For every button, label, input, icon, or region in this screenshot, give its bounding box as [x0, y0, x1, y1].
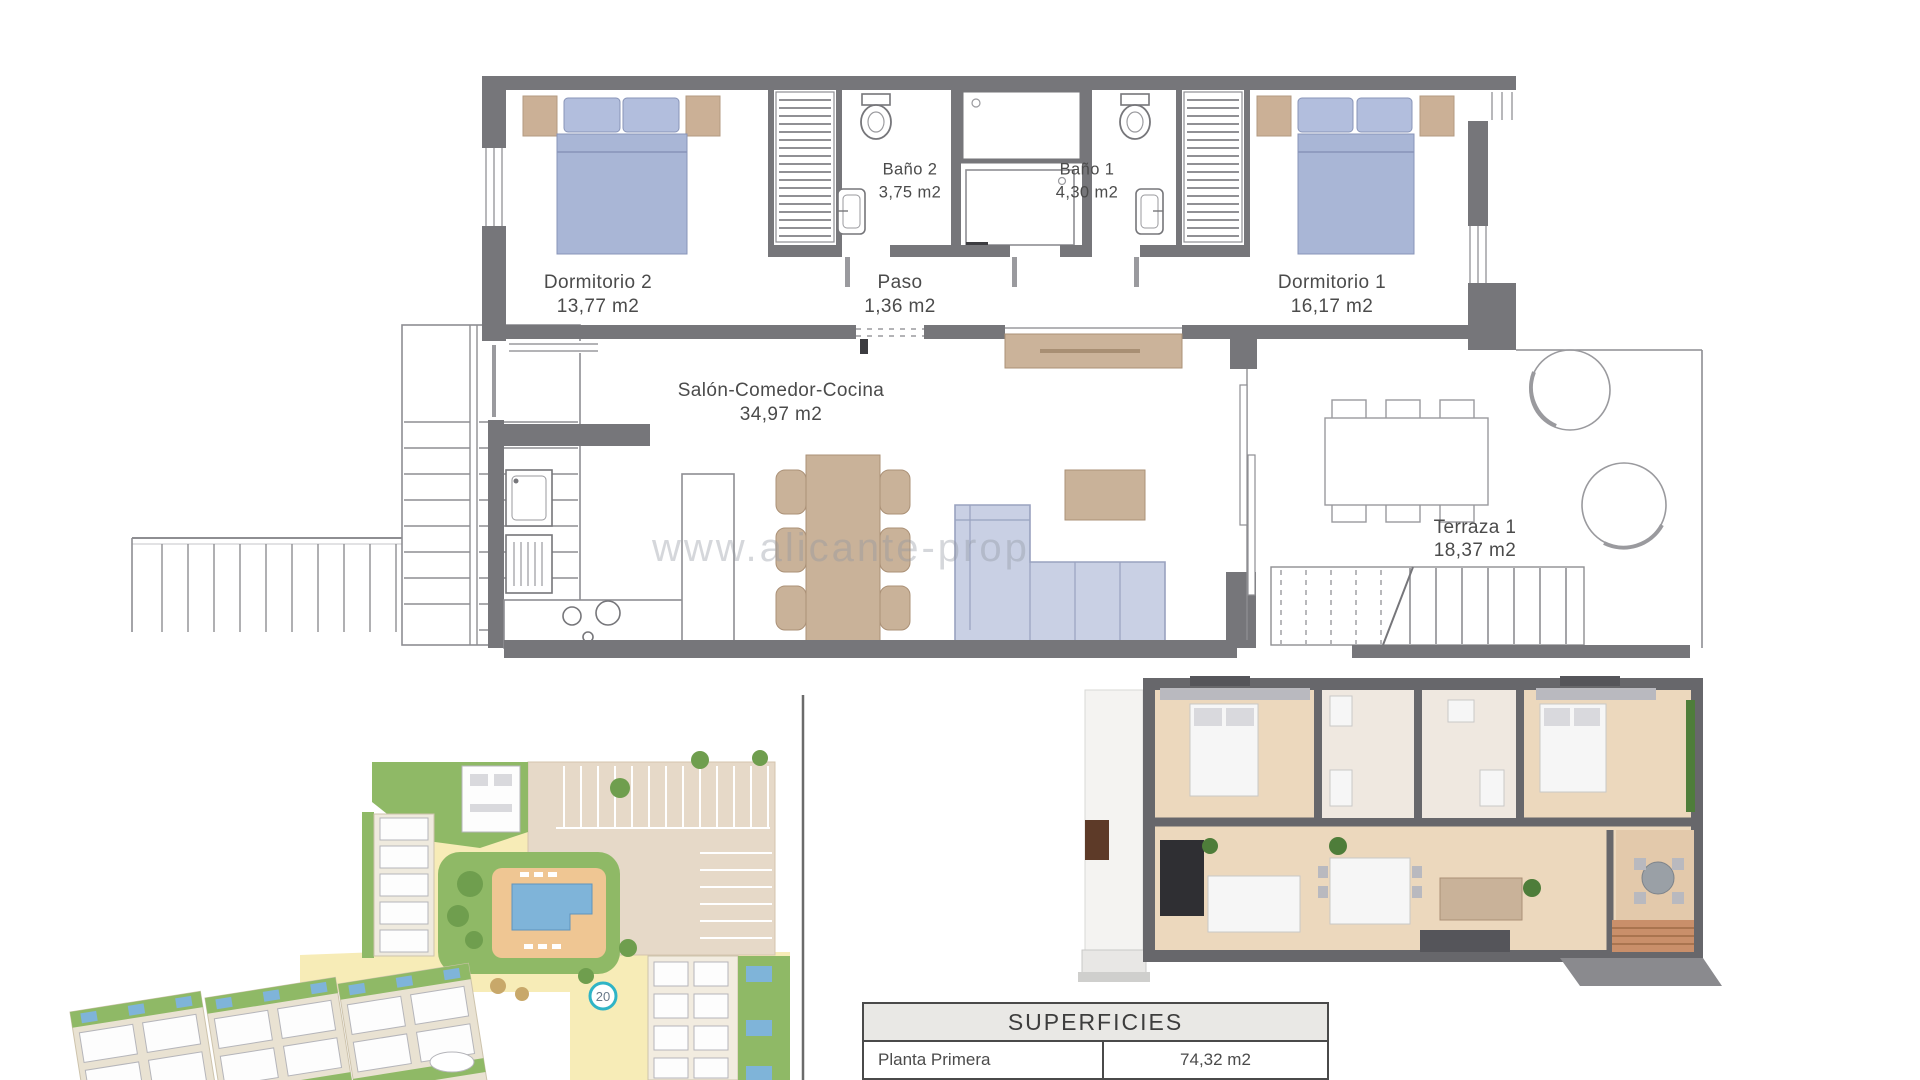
wall-bedroom-band: [482, 325, 1488, 369]
room-area-dormitorio-2: 13,77 m2: [557, 296, 639, 318]
unit-number-text: 20: [596, 989, 610, 1004]
room-label-terraza: Terraza 1: [1434, 517, 1517, 539]
wall-right: [1468, 92, 1516, 350]
terrace-dining-set: [1325, 400, 1488, 522]
table-row: Planta Primera 74,32 m2: [864, 1042, 1327, 1080]
site-rowhouses-bottom: [648, 956, 790, 1080]
bathroom-1-fixtures: [1120, 94, 1163, 234]
site-building-top: [462, 766, 520, 832]
site-plan-drawing: 20: [70, 750, 790, 1080]
closet-right: [1176, 90, 1250, 245]
site-strip-2: [205, 977, 354, 1080]
terraza-area: [1271, 350, 1702, 658]
superficies-table: SUPERFICIES Planta Primera 74,32 m2 Terr…: [862, 1002, 1329, 1080]
bath-partitions: [768, 245, 1250, 287]
site-entrance-mark: [430, 1052, 474, 1072]
closet-left: [768, 90, 842, 245]
terrace-stairs: [1271, 567, 1690, 658]
room-area-terraza: 18,37 m2: [1434, 540, 1516, 562]
room-area-salon: 34,97 m2: [740, 404, 822, 426]
bed-dormitorio-2: [523, 96, 720, 254]
round-planters: [1530, 350, 1666, 548]
room-area-dormitorio-1: 16,17 m2: [1291, 296, 1373, 318]
room-area-bano-1: 4,30 m2: [1056, 184, 1118, 203]
room-label-dormitorio-2: Dormitorio 2: [544, 272, 652, 294]
floorplan-page: 20: [0, 0, 1920, 1080]
room-area-bano-2: 3,75 m2: [879, 184, 941, 203]
render-window: [1085, 820, 1109, 860]
room-label-bano-2: Baño 2: [883, 161, 938, 180]
unit-number-badge: 20: [590, 983, 616, 1009]
room-label-salon: Salón-Comedor-Cocina: [678, 380, 885, 402]
room-label-dormitorio-1: Dormitorio 1: [1278, 272, 1386, 294]
watermark-text: www.alicante-prop: [652, 526, 1292, 571]
wall-bottom: [504, 640, 1237, 658]
superficies-title: SUPERFICIES: [864, 1004, 1327, 1042]
room-label-bano-1: Baño 1: [1060, 161, 1115, 180]
render-3d: [1078, 676, 1722, 986]
room-area-paso: 1,36 m2: [864, 296, 935, 318]
site-rowhouses-left: [374, 814, 434, 956]
room-label-paso: Paso: [878, 272, 923, 294]
row-value: 74,32 m2: [1104, 1042, 1327, 1078]
site-strip-1: [70, 991, 219, 1080]
bed-dormitorio-1: [1257, 96, 1454, 254]
coffee-table: [1065, 470, 1145, 520]
row-label: Planta Primera: [864, 1042, 1104, 1078]
